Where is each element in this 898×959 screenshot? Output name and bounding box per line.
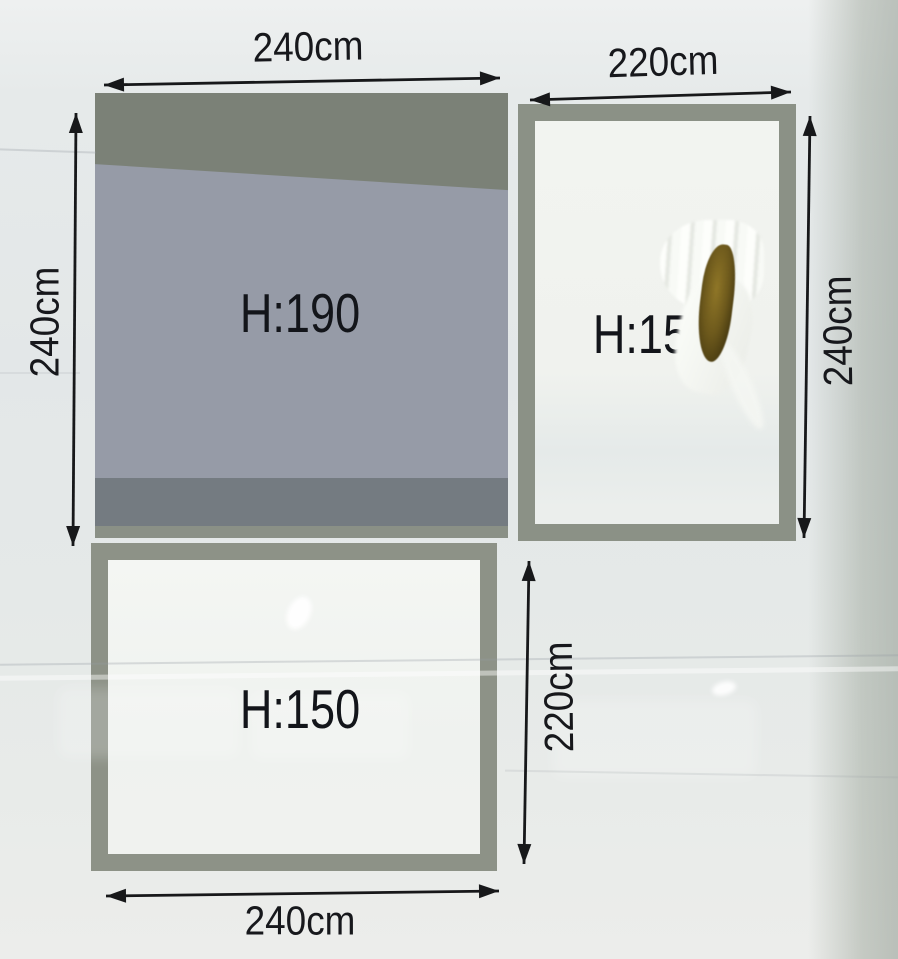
crease-line [0, 148, 96, 153]
dim-label-right-height: 240cm [814, 275, 863, 386]
dim-arrow-main-height [73, 113, 76, 546]
dim-label-main-height: 240cm [22, 267, 69, 378]
packaging-tear [648, 218, 783, 403]
dim-arrow-bottom-height [524, 561, 529, 864]
height-label-bottom: H:150 [240, 677, 360, 741]
dim-arrow-right-height [804, 116, 810, 538]
film-glare-patch [58, 688, 240, 758]
shading-band-top [95, 93, 508, 192]
dim-label-bottom-width: 240cm [245, 898, 356, 945]
dim-label-bottom-height: 220cm [535, 641, 584, 752]
shading-band-bottom [95, 478, 508, 526]
glare-spot [711, 679, 738, 698]
dim-label-right-width: 220cm [607, 37, 719, 87]
height-label-main: H:190 [240, 281, 360, 345]
dim-arrow-right-width [530, 92, 791, 100]
shading-band-edge [95, 526, 508, 538]
dim-label-main-width: 240cm [252, 22, 363, 71]
dim-arrow-bottom-width [106, 891, 499, 896]
dim-arrow-main-width [104, 78, 500, 85]
packaging-dimensions-photo: 240cm 220cm 240cm 240cm 220cm 240cm H:19… [0, 0, 898, 959]
